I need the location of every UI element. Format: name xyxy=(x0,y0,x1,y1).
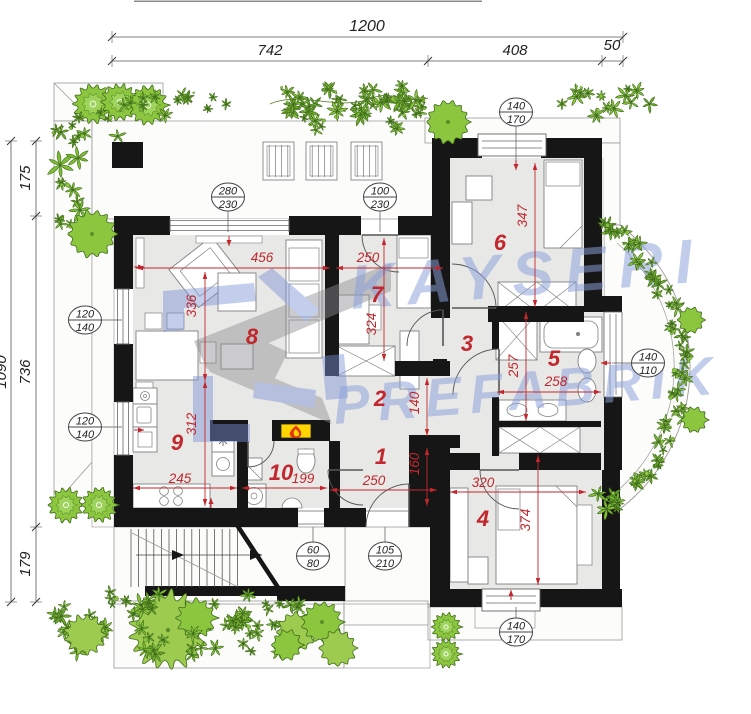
svg-text:4: 4 xyxy=(476,506,489,531)
svg-text:742: 742 xyxy=(257,42,283,59)
svg-text:1200: 1200 xyxy=(349,18,385,35)
svg-text:100: 100 xyxy=(371,186,390,198)
svg-text:9: 9 xyxy=(171,430,184,455)
svg-text:312: 312 xyxy=(184,412,199,435)
svg-text:199: 199 xyxy=(292,471,315,486)
svg-text:50: 50 xyxy=(604,37,621,54)
svg-text:140: 140 xyxy=(507,621,526,633)
svg-text:347: 347 xyxy=(515,204,530,227)
svg-text:7: 7 xyxy=(371,282,385,307)
svg-text:170: 170 xyxy=(507,114,526,126)
svg-text:140: 140 xyxy=(407,391,422,414)
svg-text:3: 3 xyxy=(461,331,473,356)
svg-text:324: 324 xyxy=(364,313,379,336)
svg-text:6: 6 xyxy=(494,230,507,255)
svg-text:374: 374 xyxy=(518,509,533,532)
svg-text:258: 258 xyxy=(544,374,568,389)
svg-text:140: 140 xyxy=(507,101,526,113)
svg-text:2: 2 xyxy=(373,386,387,411)
svg-text:250: 250 xyxy=(356,250,380,265)
svg-text:736: 736 xyxy=(17,359,34,385)
svg-text:408: 408 xyxy=(502,42,528,59)
svg-text:120: 120 xyxy=(76,309,95,321)
svg-text:230: 230 xyxy=(370,199,390,211)
svg-text:230: 230 xyxy=(218,199,238,211)
svg-text:245: 245 xyxy=(168,471,192,486)
svg-text:120: 120 xyxy=(76,416,95,428)
svg-text:1090: 1090 xyxy=(0,355,10,389)
svg-text:456: 456 xyxy=(251,250,274,265)
svg-text:60: 60 xyxy=(307,545,320,557)
svg-text:10: 10 xyxy=(269,460,294,485)
svg-text:140: 140 xyxy=(76,322,95,334)
svg-text:105: 105 xyxy=(376,545,395,557)
svg-text:250: 250 xyxy=(362,473,386,488)
svg-text:160: 160 xyxy=(407,452,422,475)
svg-text:336: 336 xyxy=(184,294,199,317)
svg-text:5: 5 xyxy=(548,346,561,371)
svg-text:80: 80 xyxy=(307,558,320,570)
svg-text:8: 8 xyxy=(246,324,259,349)
svg-text:175: 175 xyxy=(17,165,34,191)
svg-text:179: 179 xyxy=(17,551,34,577)
svg-text:170: 170 xyxy=(507,634,526,646)
svg-text:280: 280 xyxy=(218,186,238,198)
svg-text:140: 140 xyxy=(76,429,95,441)
svg-text:140: 140 xyxy=(639,352,658,364)
svg-text:1: 1 xyxy=(375,444,387,469)
svg-text:210: 210 xyxy=(375,558,395,570)
svg-text:110: 110 xyxy=(639,365,657,377)
svg-text:320: 320 xyxy=(472,475,495,490)
svg-text:257: 257 xyxy=(506,354,521,378)
